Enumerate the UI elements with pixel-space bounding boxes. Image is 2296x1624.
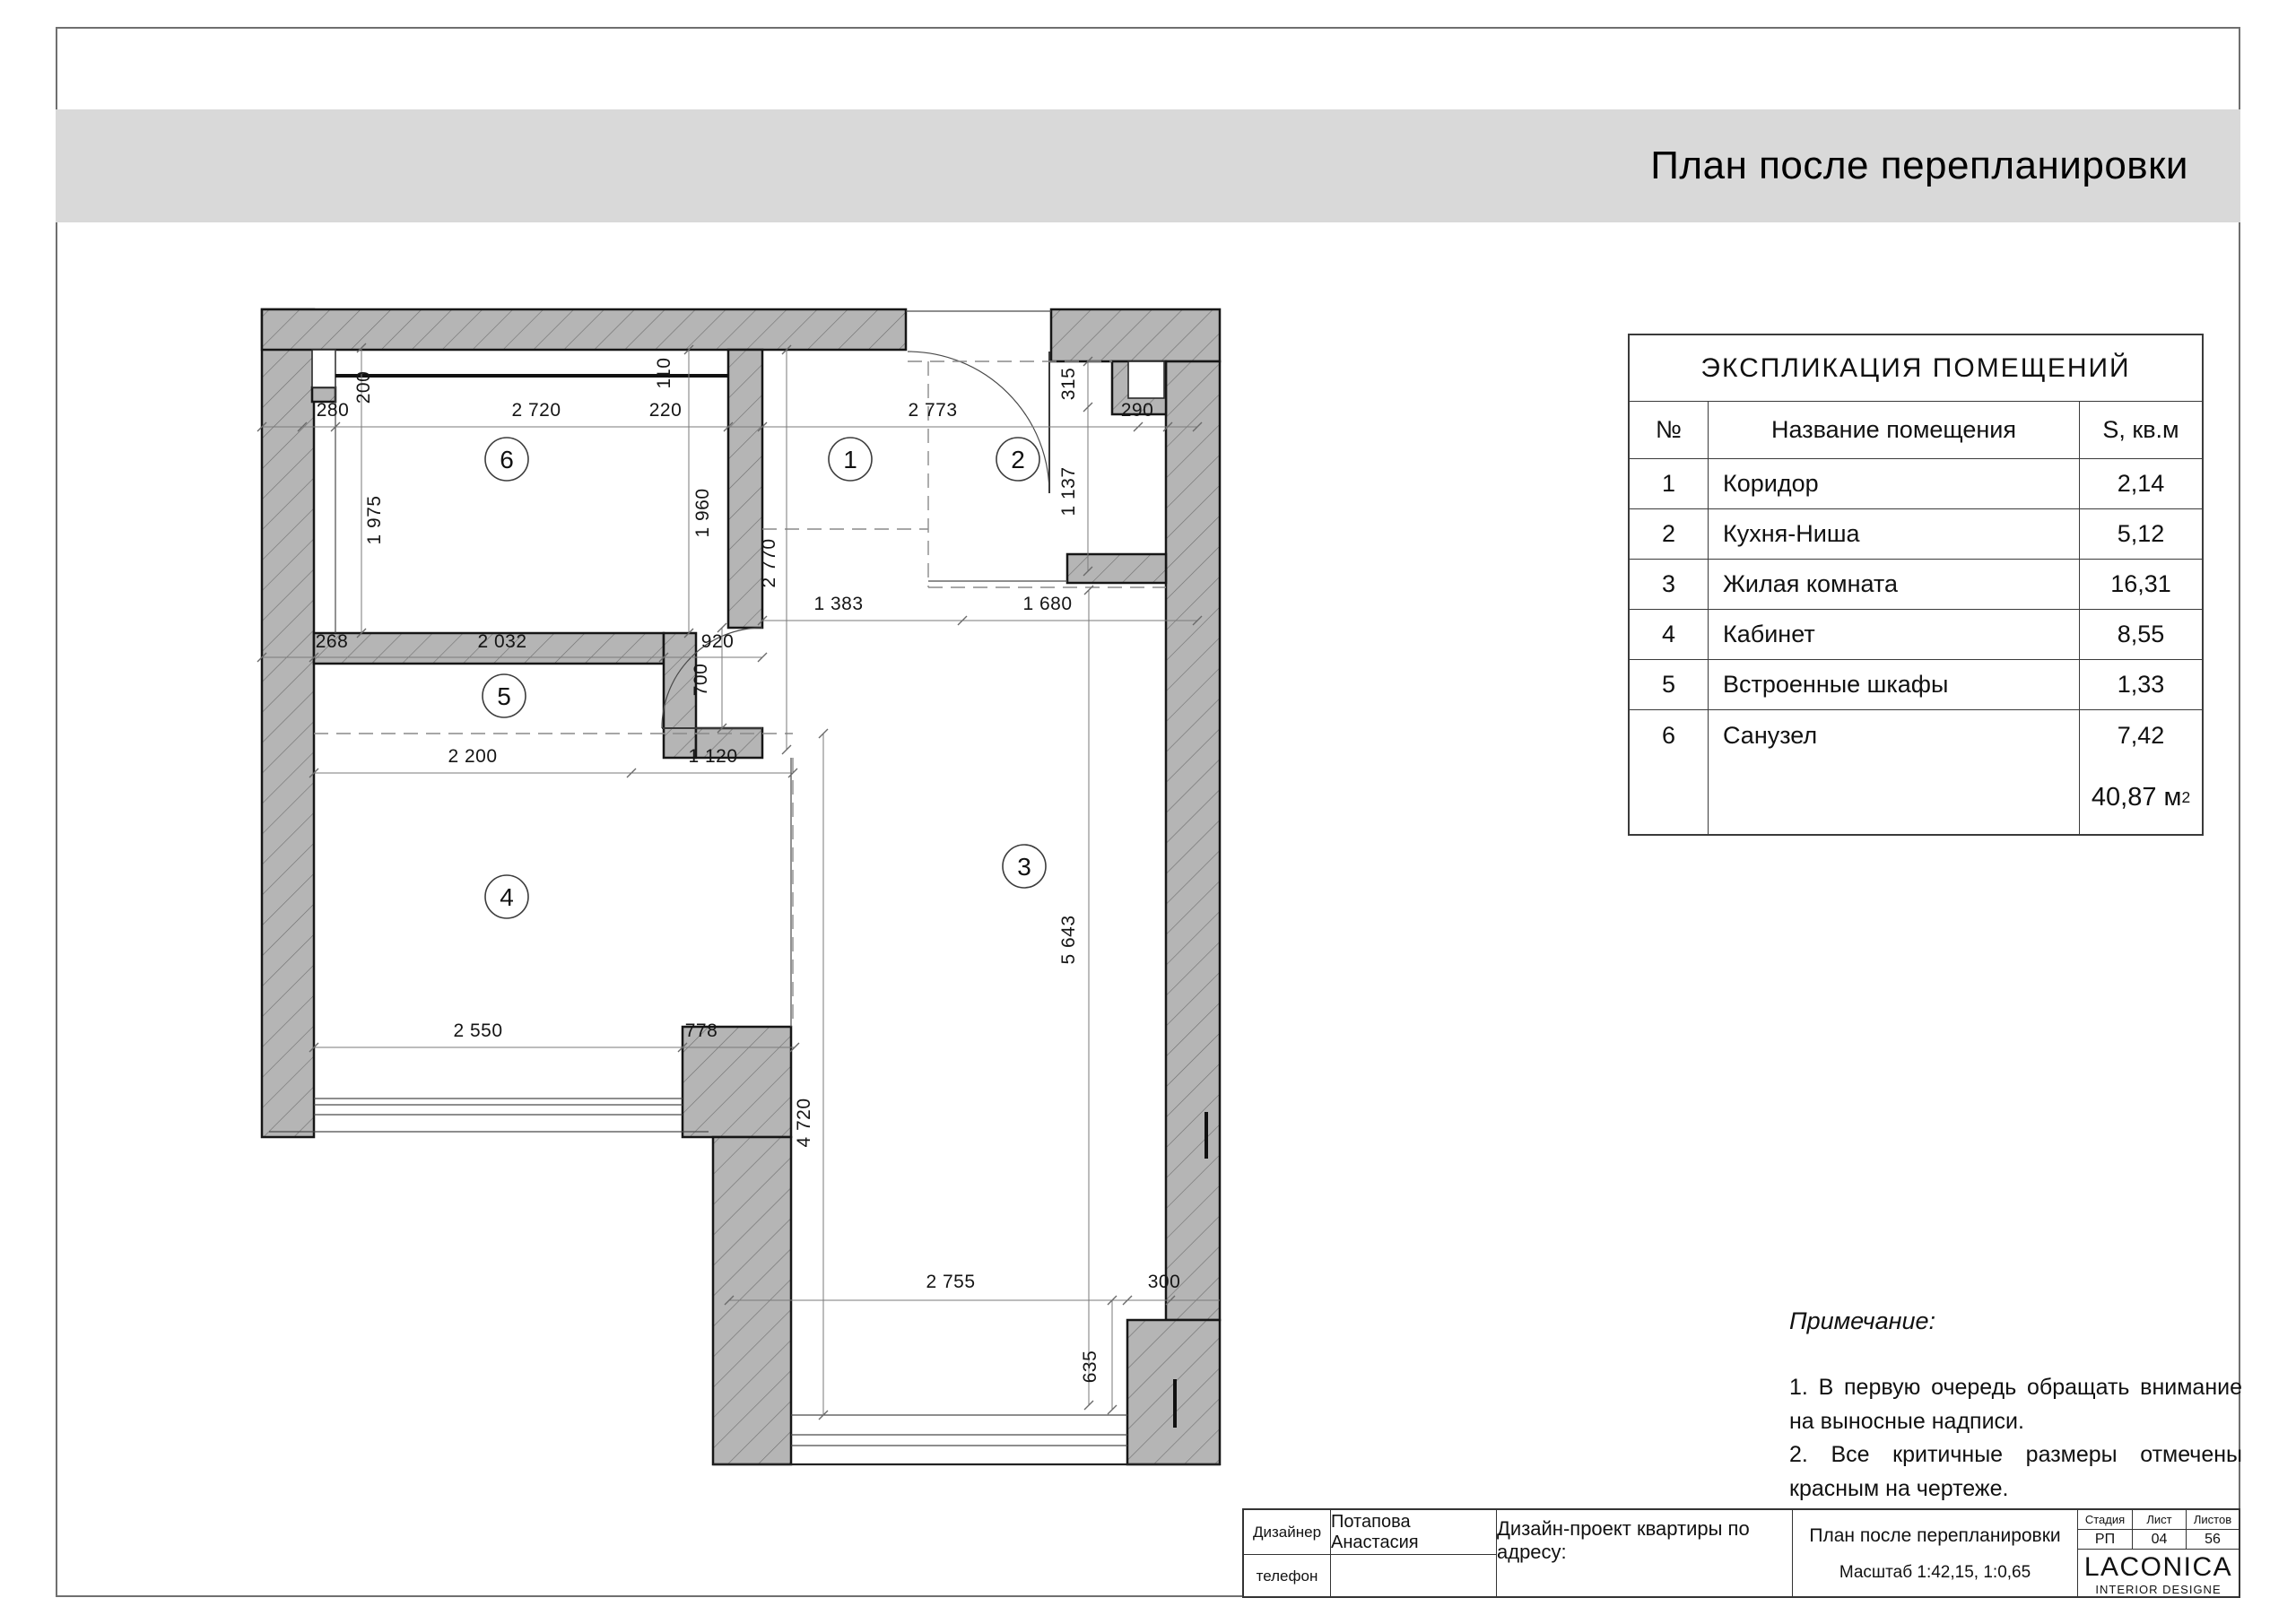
dimension-label: 2 032 (477, 631, 526, 652)
stage-value: РП (2078, 1530, 2133, 1550)
room-number: 1 (843, 446, 857, 473)
dimension-label: 1 680 (1022, 594, 1072, 614)
dimension-label: 4 720 (794, 1098, 814, 1147)
dimension-label: 2 770 (759, 538, 779, 587)
room-number: 2 (1011, 446, 1025, 473)
dimension-label: 268 (316, 631, 349, 652)
explication-cell-are: 1,33 (2080, 660, 2202, 709)
dimension-label: 200 (353, 371, 374, 404)
stage-label: Стадия (2078, 1510, 2133, 1530)
room-number: 6 (500, 446, 514, 473)
explication-cell-num: 4 (1630, 610, 1709, 659)
note-item: 1. В первую очередь обращать внимание на… (1789, 1371, 2242, 1438)
dimension-label: 315 (1058, 368, 1079, 401)
dimension-label: 110 (654, 358, 674, 389)
sheet-value: 04 (2133, 1530, 2187, 1550)
drawing-sheet: План после перепланировки (0, 0, 2296, 1624)
dimension-label: 778 (685, 1020, 718, 1041)
dimension-label: 1 120 (688, 746, 737, 767)
explication-cell-nam: Встроенные шкафы (1709, 660, 2080, 709)
dimension-label: 635 (1080, 1350, 1100, 1384)
sheet-title: План после перепланировки (1809, 1525, 2060, 1547)
dimension-label: 2 773 (908, 400, 957, 421)
dimension-label: 2 200 (448, 746, 497, 767)
col-header-num: № (1630, 402, 1709, 458)
sheet-scale: Масштаб 1:42,15, 1:0,65 (1839, 1563, 2031, 1583)
explication-total-row: 40,87 м2 (1630, 760, 2202, 834)
dimension-label: 920 (701, 631, 735, 652)
brand-cell: LACONICA INTERIOR DESIGNE (2078, 1550, 2239, 1598)
explication-cell-num: 3 (1630, 560, 1709, 609)
dimension-label: 2 720 (511, 400, 561, 421)
explication-cell-nam: Коридор (1709, 459, 2080, 508)
sheets-value: 56 (2187, 1530, 2239, 1550)
explication-cell-are: 5,12 (2080, 509, 2202, 559)
sheet-title-cell: План после перепланировки Масштаб 1:42,1… (1793, 1510, 2078, 1598)
room-number: 4 (500, 883, 514, 911)
explication-title: ЭКСПЛИКАЦИЯ ПОМЕЩЕНИЙ (1630, 335, 2202, 402)
dimension-label: 1 383 (813, 594, 863, 614)
explication-row: 5Встроенные шкафы1,33 (1630, 660, 2202, 710)
dimension-label: 290 (1121, 400, 1154, 421)
total-area: 40,87 м2 (2080, 760, 2202, 834)
explication-cell-num: 1 (1630, 459, 1709, 508)
room-number-marks: 612543 (483, 438, 1046, 918)
sheets-label: Листов (2187, 1510, 2239, 1530)
explication-cell-are: 16,31 (2080, 560, 2202, 609)
notes-block: Примечание: 1. В первую очередь обращать… (1789, 1307, 2242, 1506)
phone-label: телефон (1244, 1555, 1331, 1598)
explication-cell-nam: Жилая комната (1709, 560, 2080, 609)
explication-cell-nam: Кухня-Ниша (1709, 509, 2080, 559)
dimension-label: 5 643 (1058, 915, 1079, 964)
explication-cell-are: 2,14 (2080, 459, 2202, 508)
dimension-label: 1 975 (364, 495, 385, 544)
designer-label: Дизайнер (1244, 1510, 1331, 1555)
col-header-area: S, кв.м (2080, 402, 2202, 458)
room-number: 5 (497, 682, 511, 710)
dimension-label: 220 (649, 400, 683, 421)
brand-subtitle: INTERIOR DESIGNE (2095, 1583, 2221, 1596)
brand-name: LACONICA (2084, 1552, 2232, 1583)
explication-cell-num: 6 (1630, 710, 1709, 760)
notes-heading: Примечание: (1789, 1307, 2242, 1335)
dimension-label: 2 755 (926, 1272, 975, 1292)
title-block: Дизайнер телефон Потапова Анастасия Диза… (1242, 1508, 2240, 1598)
explication-row: 6Санузел7,42 (1630, 710, 2202, 760)
dimension-label: 280 (317, 400, 350, 421)
explication-row: 1Коридор2,14 (1630, 459, 2202, 509)
explication-row: 2Кухня-Ниша5,12 (1630, 509, 2202, 560)
project-label: Дизайн-проект квартиры по адресу: (1497, 1510, 1793, 1598)
dimension-label: 2 550 (453, 1020, 502, 1041)
explication-cell-nam: Санузел (1709, 710, 2080, 760)
door-swings (662, 352, 1049, 728)
explication-row: 3Жилая комната16,31 (1630, 560, 2202, 610)
dimension-label: 300 (1148, 1272, 1181, 1292)
explication-cell-nam: Кабинет (1709, 610, 2080, 659)
explication-cell-num: 2 (1630, 509, 1709, 559)
sheet-label: Лист (2133, 1510, 2187, 1530)
explication-row: 4Кабинет8,55 (1630, 610, 2202, 660)
dimension-label: 1 960 (692, 488, 713, 537)
explication-cell-num: 5 (1630, 660, 1709, 709)
note-item: 2. Все критичные размеры отмечены красны… (1789, 1438, 2242, 1506)
explication-table: ЭКСПЛИКАЦИЯ ПОМЕЩЕНИЙ № Название помещен… (1628, 334, 2204, 836)
designer-value: Потапова Анастасия (1331, 1510, 1497, 1555)
explication-cell-are: 8,55 (2080, 610, 2202, 659)
dimension-label: 700 (691, 664, 711, 697)
room-number: 3 (1017, 853, 1031, 881)
explication-cell-are: 7,42 (2080, 710, 2202, 760)
dimension-label: 1 137 (1058, 466, 1079, 516)
explication-header-row: № Название помещения S, кв.м (1630, 402, 2202, 459)
col-header-name: Название помещения (1709, 402, 2080, 458)
phone-value (1331, 1555, 1497, 1598)
